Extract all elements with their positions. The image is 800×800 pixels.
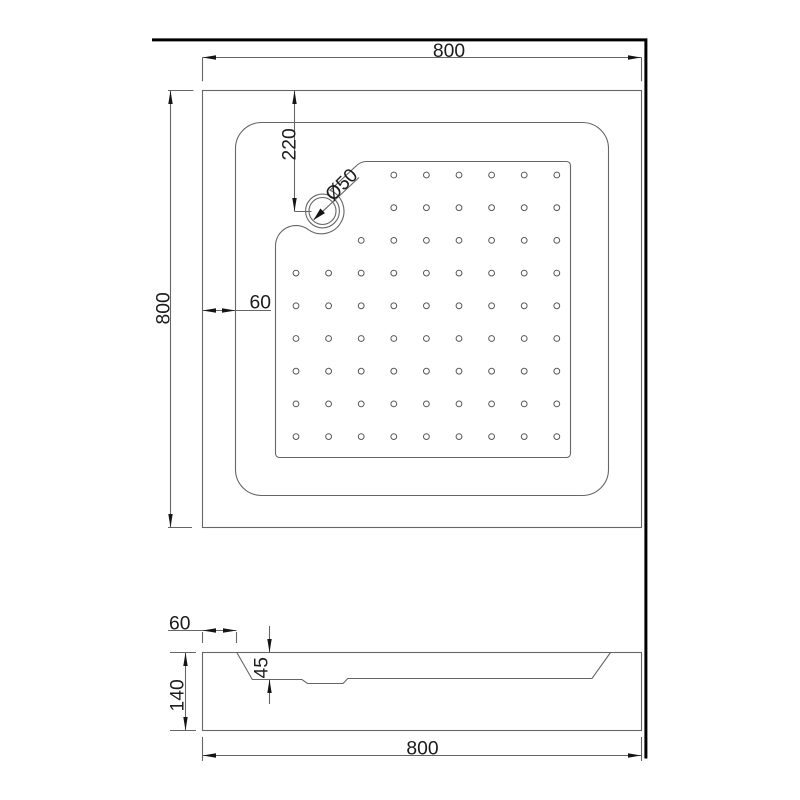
svg-text:60: 60 bbox=[250, 293, 271, 314]
svg-text:60: 60 bbox=[169, 614, 190, 635]
svg-text:800: 800 bbox=[406, 738, 438, 759]
svg-text:220: 220 bbox=[279, 128, 300, 160]
svg-text:800: 800 bbox=[433, 41, 465, 62]
svg-text:140: 140 bbox=[168, 679, 189, 711]
svg-text:800: 800 bbox=[153, 292, 174, 324]
svg-text:45: 45 bbox=[251, 657, 272, 678]
